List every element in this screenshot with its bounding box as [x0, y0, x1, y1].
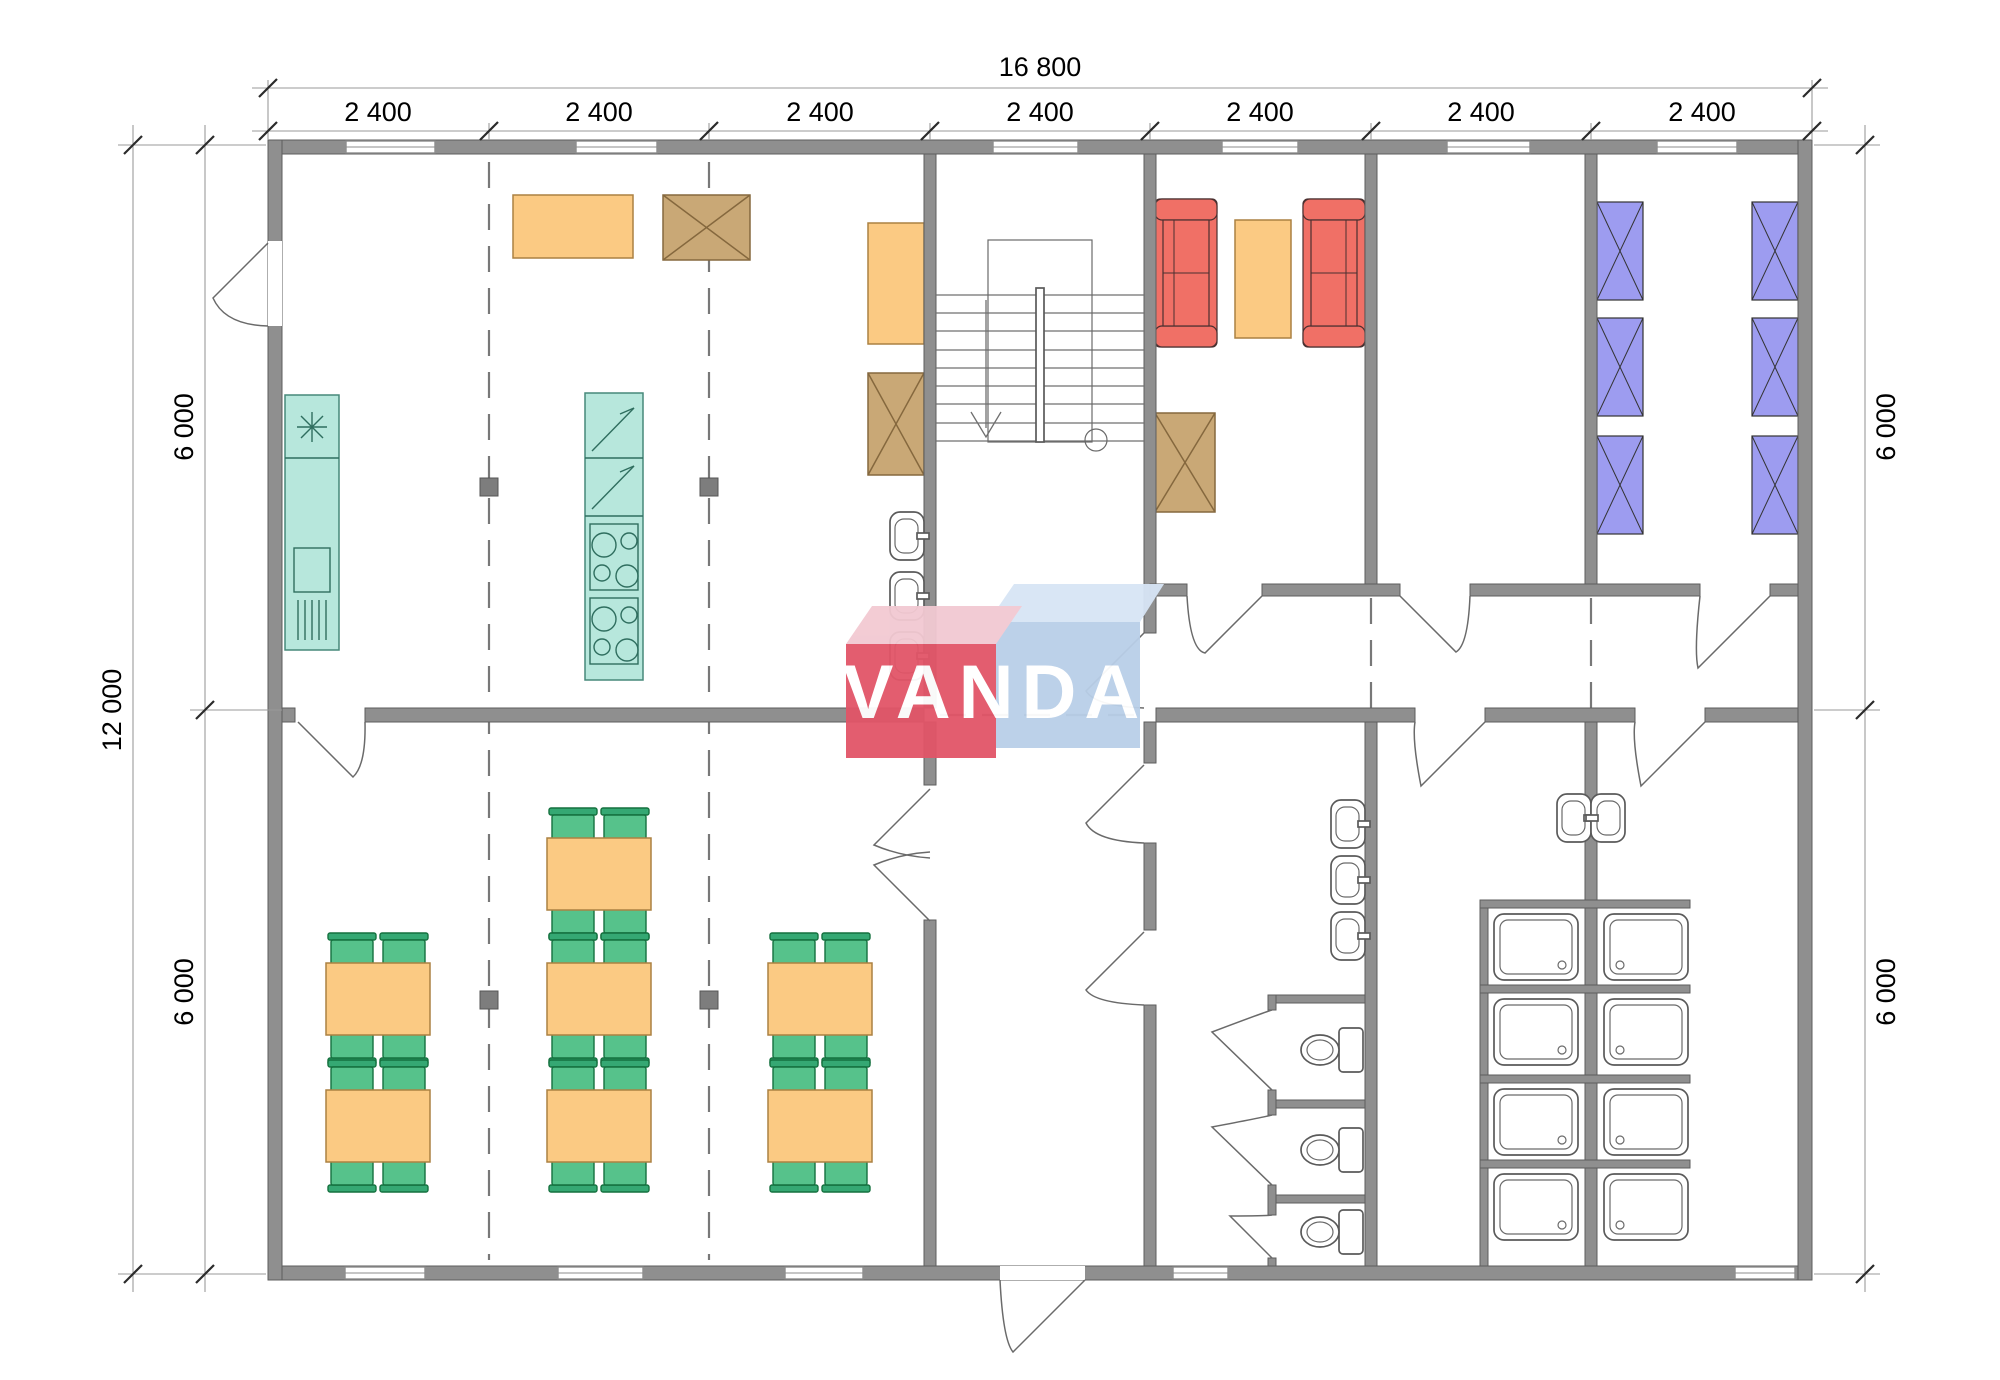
dimension-label-half: 6 000 — [1871, 393, 1901, 461]
dining-set — [547, 1060, 651, 1192]
window — [1222, 141, 1298, 153]
interior-wall — [1365, 722, 1377, 1266]
exterior-wall-right — [1798, 140, 1812, 1280]
shower-stall — [1604, 1174, 1688, 1240]
door-bedroom — [1400, 596, 1470, 652]
column-marker — [480, 478, 498, 496]
floor-plan-drawing: 16 800 2 400 2 400 2 400 2 400 2 400 2 4… — [0, 0, 2000, 1380]
dimension-label-bay: 2 400 — [565, 97, 633, 127]
watermark-text: VANDA — [843, 650, 1148, 735]
stall-wall — [1268, 995, 1276, 1010]
interior-wall — [924, 920, 936, 1266]
dimension-label-half: 6 000 — [169, 958, 199, 1026]
door-opening — [1000, 1266, 1085, 1280]
dining-set — [326, 1060, 430, 1192]
wash-basin — [1586, 794, 1625, 842]
shower-stall — [1494, 914, 1578, 980]
interior-wall — [1262, 584, 1400, 596]
shower-wall — [1480, 1160, 1690, 1168]
door-washroom — [1086, 932, 1144, 1005]
shower-stall — [1494, 1089, 1578, 1155]
door-toilet-stall — [1212, 1010, 1272, 1090]
lounge — [1155, 199, 1365, 512]
interior-wall — [365, 708, 924, 722]
dining-set — [326, 933, 430, 1065]
stair-post — [1085, 429, 1107, 451]
toilet — [1301, 1128, 1363, 1172]
dining-set — [768, 933, 872, 1065]
door-toilet-stall — [1230, 1215, 1272, 1258]
dimension-label-bay: 2 400 — [1006, 97, 1074, 127]
stair-railing — [1036, 288, 1044, 442]
dining-set — [768, 1060, 872, 1192]
kitchen-cabinet — [663, 195, 750, 260]
column-marker — [700, 478, 718, 496]
dimension-label-total-width: 16 800 — [999, 52, 1082, 82]
shower-wall — [1480, 900, 1690, 908]
door-washroom — [1086, 765, 1144, 843]
dimension-label-bay: 2 400 — [1447, 97, 1515, 127]
bed — [1752, 202, 1798, 300]
interior-wall — [1144, 1005, 1156, 1266]
window — [993, 141, 1078, 153]
interior-wall — [1585, 154, 1597, 590]
dining-set — [547, 933, 651, 1065]
shower-stall — [1604, 1089, 1688, 1155]
dining-room — [326, 808, 872, 1192]
wash-basin — [1331, 856, 1370, 904]
kitchen-worktable — [868, 223, 924, 344]
interior-wall — [1470, 584, 1700, 596]
bed — [1752, 318, 1798, 416]
window — [558, 1267, 643, 1279]
door-opening — [268, 241, 282, 326]
shower-stall — [1494, 999, 1578, 1065]
column-marker — [700, 991, 718, 1009]
floor-plan-canvas: 16 800 2 400 2 400 2 400 2 400 2 400 2 4… — [0, 0, 2000, 1380]
interior-wall — [1144, 843, 1156, 930]
door-shower-room — [1634, 722, 1705, 786]
wash-basin — [1331, 800, 1370, 848]
interior-wall — [282, 708, 295, 722]
stall-wall — [1276, 1100, 1365, 1108]
sofa — [1155, 199, 1217, 347]
interior-wall — [1485, 708, 1635, 722]
stall-wall — [1268, 1258, 1276, 1266]
shower-wall — [1480, 985, 1690, 993]
bed — [1597, 436, 1643, 534]
door-lounge — [1187, 596, 1262, 653]
dimension-label-total-height: 12 000 — [97, 669, 127, 752]
interior-wall — [1770, 584, 1798, 596]
cooking-range — [585, 393, 643, 680]
bedroom — [1597, 202, 1798, 534]
window — [1657, 141, 1737, 153]
double-door-leaf — [874, 852, 930, 921]
kitchen-worktable — [513, 195, 633, 258]
dining-set — [547, 808, 651, 940]
door-dining — [298, 722, 365, 777]
logo-red-top-face — [846, 606, 1022, 644]
door-bedroom — [1696, 596, 1770, 668]
staircase — [936, 240, 1144, 451]
door-toilet-stall — [1212, 1115, 1272, 1185]
window — [1735, 1267, 1795, 1279]
dimension-label-bay: 2 400 — [344, 97, 412, 127]
wash-basin — [890, 512, 929, 560]
window — [576, 141, 657, 153]
bed — [1597, 318, 1643, 416]
coffee-table — [1235, 220, 1291, 338]
interior-wall — [1705, 708, 1798, 722]
bed — [1597, 202, 1643, 300]
stall-wall — [1268, 1185, 1276, 1215]
window — [1173, 1267, 1228, 1279]
dimension-label-bay: 2 400 — [1668, 97, 1736, 127]
dimension-label-bay: 2 400 — [1226, 97, 1294, 127]
dimension-label-bay: 2 400 — [786, 97, 854, 127]
interior-wall — [1365, 154, 1377, 590]
stall-wall — [1268, 1090, 1276, 1115]
window — [785, 1267, 863, 1279]
dimension-label-half: 6 000 — [169, 393, 199, 461]
window — [1447, 141, 1530, 153]
shower-stall — [1494, 1174, 1578, 1240]
bed — [1752, 436, 1798, 534]
washroom — [1301, 800, 1370, 1254]
dimension-label-half: 6 000 — [1871, 958, 1901, 1026]
column-marker — [480, 991, 498, 1009]
door-shower-room — [1414, 722, 1485, 786]
stall-wall — [1276, 995, 1365, 1003]
lounge-cabinet — [1155, 413, 1215, 512]
shower-stall — [1604, 914, 1688, 980]
door-kitchen-exterior — [213, 243, 268, 326]
toilet — [1301, 1028, 1363, 1072]
watermark-logo: VANDA — [843, 584, 1164, 758]
wash-basin — [1331, 912, 1370, 960]
window — [346, 141, 435, 153]
sink-symbol — [297, 412, 327, 442]
kitchen — [285, 195, 924, 680]
window — [345, 1267, 425, 1279]
shower-stall — [1604, 999, 1688, 1065]
interior-wall — [1144, 154, 1156, 633]
kitchen-cabinet — [868, 373, 924, 475]
interior-wall — [1156, 708, 1415, 722]
toilet — [1301, 1210, 1363, 1254]
stall-wall — [1276, 1195, 1365, 1203]
sofa — [1303, 199, 1365, 347]
door-main-entrance — [1000, 1280, 1085, 1352]
shower-wall — [1480, 1075, 1690, 1083]
double-door-leaf — [874, 789, 930, 858]
